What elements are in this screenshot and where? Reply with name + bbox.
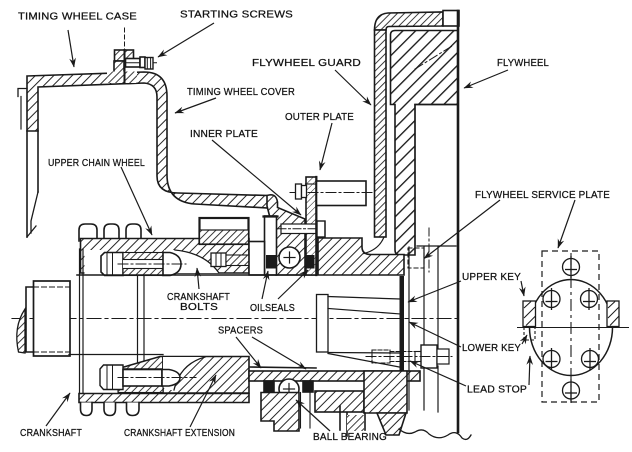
svg-text:STARTING SCREWS: STARTING SCREWS (180, 10, 293, 21)
svg-text:BOLTS: BOLTS (180, 302, 218, 313)
svg-text:CRANKSHAFT EXTENSION: CRANKSHAFT EXTENSION (124, 428, 235, 439)
svg-text:UPPER CHAIN WHEEL: UPPER CHAIN WHEEL (48, 158, 145, 169)
svg-text:TIMING WHEEL CASE: TIMING WHEEL CASE (18, 12, 137, 23)
svg-text:UPPER KEY: UPPER KEY (462, 272, 521, 283)
svg-text:LOWER KEY: LOWER KEY (462, 343, 521, 354)
svg-text:FLYWHEEL: FLYWHEEL (497, 58, 549, 69)
svg-text:SPACERS: SPACERS (218, 326, 263, 337)
svg-text:OILSEALS: OILSEALS (250, 303, 295, 314)
svg-text:OUTER PLATE: OUTER PLATE (285, 112, 354, 123)
svg-text:INNER PLATE: INNER PLATE (190, 129, 258, 140)
svg-text:CRANKSHAFT: CRANKSHAFT (20, 428, 82, 439)
svg-text:TIMING WHEEL COVER: TIMING WHEEL COVER (187, 87, 295, 98)
svg-text:FLYWHEEL SERVICE PLATE: FLYWHEEL SERVICE PLATE (475, 190, 610, 201)
svg-text:BALL BEARING: BALL BEARING (313, 432, 387, 443)
svg-text:FLYWHEEL GUARD: FLYWHEEL GUARD (252, 58, 361, 69)
svg-text:LEAD STOP: LEAD STOP (467, 385, 527, 396)
